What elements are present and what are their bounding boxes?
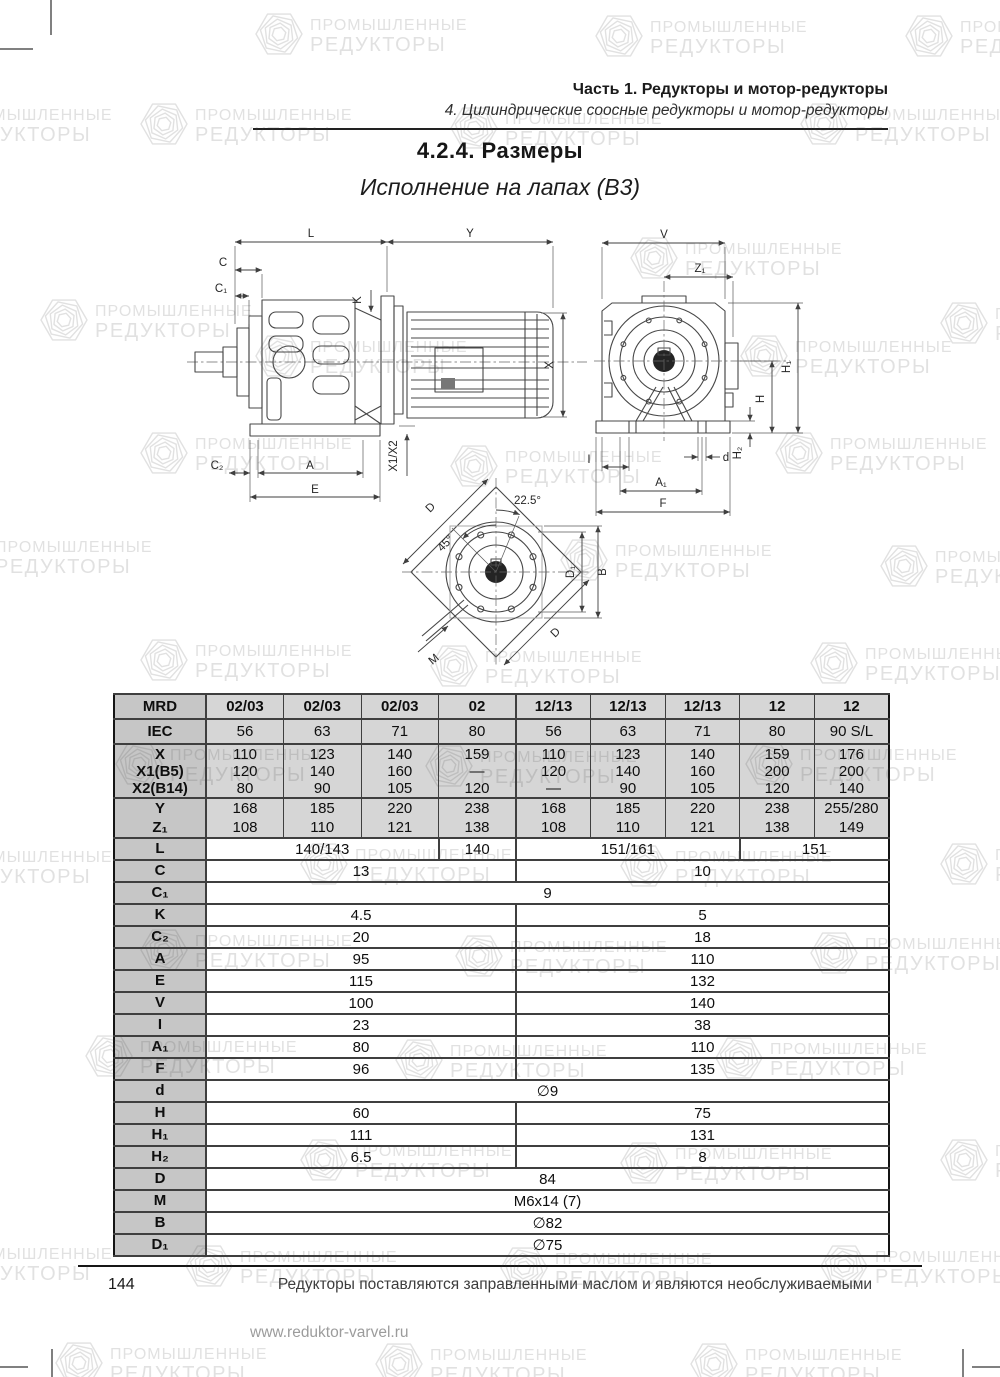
watermark-text-line2: РЕДУКТОРЫ bbox=[310, 34, 468, 56]
watermark-logo-icon bbox=[880, 538, 928, 592]
row-label-k: K bbox=[114, 904, 206, 926]
dim-label-Y: Y bbox=[466, 228, 474, 240]
watermark-logo-icon bbox=[905, 8, 953, 62]
row-label-c: C bbox=[114, 860, 206, 882]
page-header: Часть 1. Редукторы и мотор-редукторы 4. … bbox=[445, 80, 888, 122]
row-label-h: H bbox=[114, 1102, 206, 1124]
watermark: ПРОМЫШЛЕННЫЕРЕДУКТОРЫ bbox=[375, 1336, 588, 1377]
table-cell: 132 bbox=[516, 970, 889, 992]
part-title: Часть 1. Редукторы и мотор-редукторы bbox=[445, 80, 888, 100]
table-cell: 12 bbox=[814, 694, 889, 719]
dim-label-C2: C₂ bbox=[211, 460, 224, 472]
row-label-mrd: MRD bbox=[114, 694, 206, 719]
watermark-text-line1: ПРОМЫШЛЕННЫЕ bbox=[875, 1249, 1000, 1266]
table-cell: 02/03 bbox=[361, 694, 439, 719]
row-label-dd: D bbox=[114, 1168, 206, 1190]
crop-mark bbox=[0, 48, 33, 50]
table-cell: 185110 bbox=[591, 798, 666, 838]
footer-rule bbox=[78, 1265, 922, 1267]
table-cell: 115 bbox=[206, 970, 516, 992]
chapter-title: 4. Цилиндрические соосные редукторы и мо… bbox=[445, 100, 888, 122]
table-cell: 95 bbox=[206, 948, 516, 970]
row-label-iec: IEC bbox=[114, 719, 206, 744]
watermark-text-line1: ПРОМЫШЛЕННЫЕ bbox=[615, 543, 773, 560]
table-cell: 80 bbox=[439, 719, 517, 744]
watermark: ПРОМЫШЛЕННЫЕРЕДУКТОРЫ bbox=[940, 295, 1000, 349]
mounting-subtitle: Исполнение на лапах (В3) bbox=[0, 174, 1000, 201]
crop-mark bbox=[972, 1366, 1000, 1368]
watermark-text-line2: РЕДУКТОРЫ bbox=[195, 660, 353, 682]
table-cell: 255/280149 bbox=[814, 798, 889, 838]
dim-label-X: X bbox=[544, 361, 556, 369]
table-cell: 63 bbox=[284, 719, 362, 744]
row-label-c1: C₁ bbox=[114, 882, 206, 904]
watermark-text-line1: ПРОМЫШЛЕННЫЕ bbox=[195, 643, 353, 660]
angle-label-45: 45° bbox=[435, 533, 456, 554]
table-cell: 110 bbox=[516, 1036, 889, 1058]
dim-label-Z1: Z₁ bbox=[695, 263, 706, 275]
watermark-logo-icon bbox=[595, 8, 643, 62]
watermark-logo-icon bbox=[375, 1336, 423, 1377]
dim-label-F: F bbox=[659, 498, 666, 510]
watermark-logo-icon bbox=[55, 1335, 103, 1377]
dim-label-D: D bbox=[424, 501, 438, 515]
dim-label-B: B bbox=[597, 568, 609, 576]
catalog-page: Часть 1. Редукторы и мотор-редукторы 4. … bbox=[0, 0, 1000, 1377]
row-label-x: XX1(B5)X2(B14) bbox=[114, 744, 206, 798]
table-cell: 159200120 bbox=[740, 744, 815, 798]
table-cell: 12314090 bbox=[284, 744, 362, 798]
watermark-text-line2: РЕДУКТОРЫ bbox=[650, 36, 808, 58]
table-cell: 110 bbox=[516, 948, 889, 970]
watermark-text-line2: РЕДУКТОРЫ bbox=[995, 323, 1000, 345]
table-row-h2: H₂6.58 bbox=[114, 1146, 889, 1168]
watermark-text-line1: ПРОМЫШЛЕННЫЕ bbox=[995, 847, 1000, 864]
row-label-i: I bbox=[114, 1014, 206, 1036]
table-cell: 151 bbox=[740, 838, 889, 860]
table-cell: 8 bbox=[516, 1146, 889, 1168]
table-cell: 38 bbox=[516, 1014, 889, 1036]
table-cell: 12 bbox=[740, 694, 815, 719]
watermark-text-line1: ПРОМЫШЛЕННЫЕ bbox=[995, 306, 1000, 323]
table-cell: 9 bbox=[206, 882, 889, 904]
footer-note: Редукторы поставляются заправленными мас… bbox=[240, 1276, 910, 1294]
table-cell: 5 bbox=[516, 904, 889, 926]
row-label-m: M bbox=[114, 1190, 206, 1212]
table-row-h: H6075 bbox=[114, 1102, 889, 1124]
table-row-v: V100140 bbox=[114, 992, 889, 1014]
watermark: ПРОМЫШЛЕННЫЕРЕДУКТОРЫ bbox=[0, 838, 113, 892]
row-label-a: A bbox=[114, 948, 206, 970]
watermark: ПРОМЫШЛЕННЫЕРЕДУКТОРЫ bbox=[55, 1335, 268, 1377]
table-cell: 185110 bbox=[284, 798, 362, 838]
watermark-text-line1: ПРОМЫШЛЕННЫЕ bbox=[650, 19, 808, 36]
watermark: ПРОМЫШЛЕННЫЕРЕДУКТОРЫ bbox=[0, 1235, 113, 1289]
table-row-k: K4.55 bbox=[114, 904, 889, 926]
watermark: ПРОМЫШЛЕННЫЕРЕДУКТОРЫ bbox=[255, 6, 468, 60]
table-cell: 63 bbox=[591, 719, 666, 744]
table-cell: 11012080 bbox=[206, 744, 284, 798]
watermark-logo-icon bbox=[690, 1336, 738, 1377]
dim-label-d: d bbox=[723, 452, 729, 464]
table-cell: 168108 bbox=[206, 798, 284, 838]
table-row-a: A95110 bbox=[114, 948, 889, 970]
watermark-logo-icon bbox=[810, 635, 858, 689]
watermark-logo-icon bbox=[140, 632, 188, 686]
dim-label-E: E bbox=[311, 484, 319, 496]
watermark-logo-icon bbox=[940, 1132, 988, 1186]
watermark-text-line1: ПРОМЫШЛЕННЫЕ bbox=[430, 1347, 588, 1364]
table-cell: 56 bbox=[516, 719, 591, 744]
row-label-f: F bbox=[114, 1058, 206, 1080]
watermark-text-line1: ПРОМЫШЛЕННЫЕ bbox=[0, 539, 153, 556]
dim-label-H1: H₁ bbox=[781, 361, 793, 373]
dim-label-A: A bbox=[306, 460, 314, 472]
crop-mark bbox=[962, 1349, 964, 1377]
dim-label-V: V bbox=[660, 229, 668, 241]
watermark-text-line2: РЕДУКТОРЫ bbox=[995, 1160, 1000, 1182]
table-cell: 71 bbox=[665, 719, 740, 744]
watermark-text-line1: ПРОМЫШЛЕННЫЕ bbox=[0, 849, 113, 866]
watermark: ПРОМЫШЛЕННЫЕРЕДУКТОРЫ bbox=[940, 836, 1000, 890]
table-cell: 168108 bbox=[516, 798, 591, 838]
table-row-e: E115132 bbox=[114, 970, 889, 992]
row-label-d1: D₁ bbox=[114, 1234, 206, 1256]
row-label-a1: A₁ bbox=[114, 1036, 206, 1058]
watermark-logo-icon bbox=[140, 425, 188, 479]
table-cell: 151/161 bbox=[516, 838, 740, 860]
table-cell: 18 bbox=[516, 926, 889, 948]
dim-label-H: H bbox=[755, 395, 767, 403]
angle-label-225: 22.5° bbox=[514, 495, 541, 507]
table-row-y: YZ₁1681081851102201212381381681081851102… bbox=[114, 798, 889, 838]
dim-label-D-b: D bbox=[549, 626, 563, 640]
footer-website: www.reduktor-varvel.ru bbox=[250, 1324, 409, 1342]
table-cell: 238138 bbox=[740, 798, 815, 838]
table-cell: 140 bbox=[439, 838, 517, 860]
header-rule bbox=[253, 128, 888, 130]
table-row-i: I2338 bbox=[114, 1014, 889, 1036]
table-cell: 140160105 bbox=[665, 744, 740, 798]
table-row-mrd: MRD02/0302/0302/030212/1312/1312/131212 bbox=[114, 694, 889, 719]
flange-view-drawing: 22.5° 45° D D B D₁ M bbox=[388, 460, 638, 688]
table-cell: 220121 bbox=[665, 798, 740, 838]
watermark-text-line2: РЕДУКТОРЫ bbox=[745, 1364, 903, 1377]
table-cell: ∅82 bbox=[206, 1212, 889, 1234]
watermark-text-line1: ПРОМЫШЛЕННЫЕ bbox=[995, 1143, 1000, 1160]
watermark-text-line2: РЕДУКТОРЫ bbox=[995, 864, 1000, 886]
crop-mark bbox=[50, 0, 52, 35]
table-cell: 60 bbox=[206, 1102, 516, 1124]
dimensions-table-wrap: MRD02/0302/0302/030212/1312/1312/131212I… bbox=[113, 693, 890, 1257]
table-cell: 10 bbox=[516, 860, 889, 882]
table-cell: 71 bbox=[361, 719, 439, 744]
table-cell: 12/13 bbox=[665, 694, 740, 719]
table-cell: 176200140 bbox=[814, 744, 889, 798]
watermark-text-line2: РЕДУКТОРЫ bbox=[430, 1364, 588, 1377]
watermark-text-line2: РЕДУКТОРЫ bbox=[0, 556, 153, 578]
watermark-logo-icon bbox=[40, 292, 88, 346]
table-cell: 140 bbox=[516, 992, 889, 1014]
dimensions-table: MRD02/0302/0302/030212/1312/1312/131212I… bbox=[113, 693, 890, 1257]
dim-label-C1: C₁ bbox=[215, 283, 227, 295]
watermark-text-line2: РЕДУКТОРЫ bbox=[865, 663, 1000, 685]
table-cell: 02/03 bbox=[284, 694, 362, 719]
table-cell: 02 bbox=[439, 694, 517, 719]
table-row-c: C1310 bbox=[114, 860, 889, 882]
watermark-text-line1: ПРОМЫШЛЕННЫЕ bbox=[310, 17, 468, 34]
page-number: 144 bbox=[108, 1276, 135, 1294]
table-cell: 12314090 bbox=[591, 744, 666, 798]
table-cell: 96 bbox=[206, 1058, 516, 1080]
watermark: ПРОМЫШЛЕННЫЕРЕДУКТОРЫ bbox=[595, 8, 808, 62]
watermark: ПРОМЫШЛЕННЫЕРЕДУКТОРЫ bbox=[690, 1336, 903, 1377]
watermark-text-line1: ПРОМЫШЛЕННЫЕ bbox=[0, 1246, 113, 1263]
watermark: ПРОМЫШЛЕННЫЕРЕДУКТОРЫ bbox=[905, 8, 1000, 62]
watermark: ПРОМЫШЛЕННЫЕРЕДУКТОРЫ bbox=[140, 632, 353, 686]
dim-label-A1: A₁ bbox=[655, 477, 667, 489]
watermark-text-line2: РЕДУКТОРЫ bbox=[615, 560, 773, 582]
table-cell: 13 bbox=[206, 860, 516, 882]
row-label-c2: C₂ bbox=[114, 926, 206, 948]
watermark-text-line2: РЕДУКТОРЫ bbox=[935, 566, 1000, 588]
table-row-a1: A₁80110 bbox=[114, 1036, 889, 1058]
table-cell: M6x14 (7) bbox=[206, 1190, 889, 1212]
table-cell: 238138 bbox=[439, 798, 517, 838]
section-title: 4.2.4. Размеры bbox=[0, 138, 1000, 164]
table-row-iec: IEC566371805663718090 S/L bbox=[114, 719, 889, 744]
table-cell: 84 bbox=[206, 1168, 889, 1190]
watermark-logo-icon bbox=[940, 836, 988, 890]
watermark-text-line1: ПРОМЫШЛЕННЫЕ bbox=[110, 1346, 268, 1363]
row-label-h1: H₁ bbox=[114, 1124, 206, 1146]
table-cell: 12/13 bbox=[591, 694, 666, 719]
table-row-dd: D84 bbox=[114, 1168, 889, 1190]
watermark-logo-icon bbox=[940, 295, 988, 349]
table-cell: 02/03 bbox=[206, 694, 284, 719]
crop-mark bbox=[51, 1349, 53, 1377]
watermark-logo-icon bbox=[255, 6, 303, 60]
row-label-y: YZ₁ bbox=[114, 798, 206, 838]
table-row-c1: C₁9 bbox=[114, 882, 889, 904]
table-row-d1: D₁∅75 bbox=[114, 1234, 889, 1256]
table-cell: 100 bbox=[206, 992, 516, 1014]
watermark-text-line2: РЕДУКТОРЫ bbox=[960, 36, 1000, 58]
table-cell: 80 bbox=[740, 719, 815, 744]
table-cell: 159—120 bbox=[439, 744, 517, 798]
table-row-d: d∅9 bbox=[114, 1080, 889, 1102]
table-row-m: MM6x14 (7) bbox=[114, 1190, 889, 1212]
row-label-e: E bbox=[114, 970, 206, 992]
dim-label-C: C bbox=[219, 257, 227, 269]
table-cell: 6.5 bbox=[206, 1146, 516, 1168]
table-row-h1: H₁111131 bbox=[114, 1124, 889, 1146]
watermark-text-line1: ПРОМЫШЛЕННЫЕ bbox=[745, 1347, 903, 1364]
watermark: ПРОМЫШЛЕННЫЕРЕДУКТОРЫ bbox=[0, 528, 153, 582]
table-cell: 140/143 bbox=[206, 838, 439, 860]
dim-label-H2: H₂ bbox=[732, 447, 744, 460]
watermark-text-line1: ПРОМЫШЛЕННЫЕ bbox=[960, 19, 1000, 36]
table-row-b: B∅82 bbox=[114, 1212, 889, 1234]
watermark-text-line1: ПРОМЫШЛЕННЫЕ bbox=[0, 107, 113, 124]
watermark-text-line2: РЕДУКТОРЫ bbox=[110, 1363, 268, 1377]
watermark-text-line1: ПРОМЫШЛЕННЫЕ bbox=[935, 549, 1000, 566]
dim-label-D1: D₁ bbox=[565, 566, 577, 578]
watermark: ПРОМЫШЛЕННЫЕРЕДУКТОРЫ bbox=[810, 635, 1000, 689]
dim-label-K: K bbox=[352, 296, 364, 304]
table-cell: 110120— bbox=[516, 744, 591, 798]
dim-label-L: L bbox=[308, 228, 315, 240]
table-cell: 75 bbox=[516, 1102, 889, 1124]
row-label-h2: H₂ bbox=[114, 1146, 206, 1168]
table-row-f: F96135 bbox=[114, 1058, 889, 1080]
table-cell: ∅75 bbox=[206, 1234, 889, 1256]
table-cell: 20 bbox=[206, 926, 516, 948]
table-row-x: XX1(B5)X2(B14)11012080123140901401601051… bbox=[114, 744, 889, 798]
row-label-b: B bbox=[114, 1212, 206, 1234]
table-cell: 131 bbox=[516, 1124, 889, 1146]
row-label-v: V bbox=[114, 992, 206, 1014]
table-cell: 80 bbox=[206, 1036, 516, 1058]
crop-mark bbox=[0, 1366, 28, 1368]
table-cell: 140160105 bbox=[361, 744, 439, 798]
table-cell: ∅9 bbox=[206, 1080, 889, 1102]
watermark: ПРОМЫШЛЕННЫЕРЕДУКТОРЫ bbox=[940, 1132, 1000, 1186]
table-cell: 56 bbox=[206, 719, 284, 744]
table-row-c2: C₂2018 bbox=[114, 926, 889, 948]
dim-label-M: M bbox=[427, 652, 442, 667]
table-cell: 90 S/L bbox=[814, 719, 889, 744]
table-cell: 23 bbox=[206, 1014, 516, 1036]
row-label-l: L bbox=[114, 838, 206, 860]
watermark-text-line1: ПРОМЫШЛЕННЫЕ bbox=[865, 646, 1000, 663]
watermark-text-line2: РЕДУКТОРЫ bbox=[0, 866, 113, 888]
watermark: ПРОМЫШЛЕННЫЕРЕДУКТОРЫ bbox=[880, 538, 1000, 592]
watermark-text-line1: ПРОМЫШЛЕННЫЕ bbox=[195, 107, 353, 124]
table-cell: 4.5 bbox=[206, 904, 516, 926]
table-cell: 220121 bbox=[361, 798, 439, 838]
table-cell: 135 bbox=[516, 1058, 889, 1080]
row-label-d: d bbox=[114, 1080, 206, 1102]
table-cell: 111 bbox=[206, 1124, 516, 1146]
table-cell: 12/13 bbox=[516, 694, 591, 719]
table-row-l: L140/143140151/161151 bbox=[114, 838, 889, 860]
